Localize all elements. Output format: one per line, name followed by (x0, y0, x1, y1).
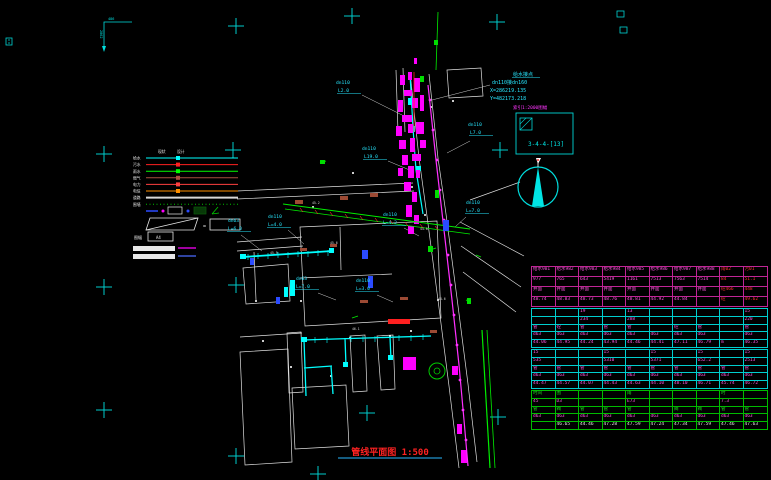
legend-header-existing: 现状 (158, 149, 166, 154)
blue-blobs (250, 220, 449, 304)
table-row: d63d63d63d63d63d63d63d63d63d63 (532, 373, 767, 381)
table-cell: 44.47 (532, 381, 556, 388)
legend-marker (176, 156, 180, 160)
equals-sign: = (203, 224, 206, 230)
table-cell: 44.95 (556, 340, 580, 347)
table-cell (626, 358, 650, 365)
table-cell: d63 (603, 373, 627, 380)
table-cell: d63 (532, 332, 556, 339)
table-cell: 5371 (650, 358, 674, 365)
table-cell: 管 (744, 366, 768, 373)
table-cell: 雨02 (720, 267, 744, 276)
table-cell (532, 317, 556, 324)
table-cell: d63 (697, 414, 721, 421)
table-cell: d63 (603, 414, 627, 421)
table-cell: 阀 (556, 407, 580, 414)
table-row: 管管管管管管管管管管 (532, 366, 767, 374)
table-cell: 管 (532, 325, 556, 332)
table-row: 45D3E737.3 (532, 399, 767, 407)
table-cell: d63 (579, 414, 603, 421)
table-cell: 44.84 (673, 297, 697, 306)
table-row: 46.6544.4647.2847.5947.2447.3447.5947.46… (532, 422, 767, 429)
table-cell (697, 391, 721, 398)
water-pipes (243, 74, 431, 396)
map-label: dn110 (468, 122, 482, 128)
table-cell: 15 (744, 350, 768, 357)
table-cell: 47.63 (744, 422, 768, 429)
table-cell: 管 (720, 366, 744, 373)
north-arrow (518, 158, 558, 207)
legend-marker (176, 189, 180, 193)
table-cell: 砼 (673, 325, 697, 332)
table-cell: 1161 (626, 277, 650, 286)
map-label: 44.6 (438, 297, 446, 301)
table-cell: d63 (579, 332, 603, 339)
table-cell: 井面 (603, 287, 627, 296)
table-cell (532, 422, 556, 429)
table-cell (626, 350, 650, 357)
pipe-data-table: 给水981给水982给水983给水984给水985给水986给水987给水988… (531, 266, 768, 431)
table-cell: 给水986 (650, 267, 674, 276)
table-cell: 48.76 (603, 297, 627, 306)
table-cell: 井面 (626, 287, 650, 296)
table-cell: 44.10 (650, 381, 674, 388)
table-cell (603, 391, 627, 398)
table-cell: d63 (720, 373, 744, 380)
table-cell: 44.24 (579, 340, 603, 347)
scale-bars (133, 246, 196, 259)
legend-marker (176, 182, 180, 186)
table-cell: 46.71 (697, 381, 721, 388)
table-cell: 46.35 (744, 340, 768, 347)
legend-marker (176, 169, 180, 173)
table-cell: 535 (532, 358, 556, 365)
table-cell: 47.34 (673, 422, 697, 429)
table-cell: 阀 (697, 407, 721, 414)
table-cell: d63 (673, 332, 697, 339)
annotation-title: 给水接点 (513, 71, 533, 78)
map-label: L=6.0 (228, 226, 242, 232)
legend-label: 污水 (133, 162, 141, 167)
table-cell: d63 (744, 414, 768, 421)
table-cell (720, 332, 744, 339)
map-label: dn63 (228, 218, 239, 224)
table-cell (579, 350, 603, 357)
table-cell (650, 309, 674, 316)
table-cell: 管 (697, 366, 721, 373)
table-cell: 7513 (650, 277, 674, 286)
table-cell (603, 317, 627, 324)
table-cell: 井面 (697, 287, 721, 296)
table-cell: 砼 (556, 325, 580, 332)
legend-symbols (146, 207, 219, 214)
table-cell: 48.73 (579, 297, 603, 306)
table-cell: d63 (673, 414, 697, 421)
table-cell (556, 358, 580, 365)
table-cell: 管 (673, 366, 697, 373)
table-cell: 15 (603, 350, 627, 357)
corner-text-h: 486 (108, 17, 114, 21)
table-cell: 管 (720, 407, 744, 414)
legend-label: 围墙 (133, 202, 141, 207)
map-label: L=4.2 (383, 220, 397, 226)
table-cell: d63 (626, 332, 650, 339)
table-cell (650, 325, 674, 332)
legend-rows: 给水污水雨水燃气电力电信道路围墙 (133, 156, 238, 207)
table-cell: 管 (626, 407, 650, 414)
table-cell: 污01 (744, 267, 768, 276)
table-cell: 管 (650, 366, 674, 373)
table-cell: 288 (626, 317, 650, 324)
table-cell (720, 325, 744, 332)
table-cell: 给水988 (697, 267, 721, 276)
table-cell (650, 399, 674, 406)
table-row: 时间围雨时 (532, 391, 767, 399)
table-cell: 管 (626, 366, 650, 373)
legend-header-design: 设计 (177, 149, 185, 154)
map-label: L7.0 (470, 130, 481, 136)
table-cell: 48.81 (626, 297, 650, 306)
table-cell: 765 (556, 277, 580, 286)
table-cell: 15 (744, 309, 768, 316)
map-label: L=7.0 (466, 208, 480, 214)
margin-marks (6, 11, 627, 45)
table-cell: 管 (579, 407, 603, 414)
table-cell: d63 (532, 414, 556, 421)
table-cell: 45.74 (720, 381, 744, 388)
table-row: 44.4744.5744.0744.4344.6344.1048.1046.71… (532, 381, 767, 388)
table-section: 给水981给水982给水983给水984给水985给水986给水987给水988… (531, 266, 768, 307)
table-row: 井面井面井面井面井面井面井面井面砼466448 (532, 287, 767, 297)
annotation-x: X=286219.135 (490, 88, 526, 94)
table-cell: d63 (556, 414, 580, 421)
table-cell: 48.83 (556, 297, 580, 306)
legend-boxes: = 图幅 A4 (134, 218, 240, 241)
table-cell: d63 (650, 373, 674, 380)
map-label: L=4.0 (268, 222, 282, 228)
table-cell: d63 (697, 332, 721, 339)
table-cell (673, 391, 697, 398)
table-cell: 44.46 (626, 340, 650, 347)
table-cell: 234 (579, 317, 603, 324)
table-cell: d63 (744, 332, 768, 339)
table-row: 977765643541911617513756375148451.1 (532, 277, 767, 287)
table-cell: 47.59 (697, 422, 721, 429)
table-cell: 977 (532, 277, 556, 286)
table-cell: 管 (603, 407, 627, 414)
table-cell: d63 (697, 373, 721, 380)
table-cell: 15 (650, 350, 674, 357)
table-cell: 管 (556, 366, 580, 373)
table-cell: 井面 (579, 287, 603, 296)
table-cell: 给水982 (556, 267, 580, 276)
table-cell: d63 (626, 373, 650, 380)
table-cell: 2513 (744, 358, 768, 365)
table-cell (697, 297, 721, 306)
table-cell: 5310 (603, 358, 627, 365)
legend-label: 燃气 (133, 175, 141, 180)
table-cell: m (720, 340, 744, 347)
map-label: dn110 (356, 278, 370, 284)
table-cell: 15 (532, 350, 556, 357)
table-cell (744, 391, 768, 398)
table-cell (579, 358, 603, 365)
table-cell: 47.46 (720, 422, 744, 429)
table-section: 191315234288220管砼管管管砼管管d63d63d63d63d63d6… (531, 308, 768, 348)
title-text: 管线平面图 1:500 (351, 446, 429, 458)
table-cell: 时 (720, 391, 744, 398)
table-cell: 15 (697, 350, 721, 357)
proposed-main-line (428, 85, 468, 466)
table-cell: 48.74 (532, 297, 556, 306)
table-cell: 围 (556, 391, 580, 398)
legend-label: 道路 (133, 195, 141, 200)
table-row: 管砼管管管砼管管 (532, 325, 767, 333)
water-fittings (240, 98, 421, 367)
table-cell: 44.06 (532, 340, 556, 347)
table-cell: 43.94 (603, 340, 627, 347)
table-cell (697, 399, 721, 406)
table-cell (650, 317, 674, 324)
table-cell: 管 (579, 325, 603, 332)
table-cell: 砼 (720, 297, 744, 306)
connection-annotation: 给水接点 dn110接dn160 X=286219.135 Y=482173.2… (490, 71, 540, 102)
table-cell (673, 350, 697, 357)
table-cell: 46.79 (697, 340, 721, 347)
table-cell (720, 350, 744, 357)
table-cell: D3 (556, 399, 580, 406)
table-cell (556, 309, 580, 316)
table-cell (720, 309, 744, 316)
table-row: 1515151515 (532, 350, 767, 358)
map-label: L=3.0 (356, 286, 370, 292)
table-cell: 47.59 (626, 422, 650, 429)
table-cell: 井面 (556, 287, 580, 296)
sheet-corner-mark: 486 2862 (99, 17, 132, 52)
map-label: dn110 (466, 200, 480, 206)
table-row: 53553105371652.22513 (532, 358, 767, 366)
table-row: 48.7448.8348.7348.7648.8144.9244.84砼49.6… (532, 297, 767, 306)
table-row: 给水981给水982给水983给水984给水985给水986给水987给水988… (532, 267, 767, 277)
table-row: 管阀管管管阀阀管管 (532, 407, 767, 415)
legend-label: 给水 (133, 156, 141, 161)
street-outlines (237, 68, 524, 468)
table-cell (720, 358, 744, 365)
table-cell: 45 (532, 399, 556, 406)
table-cell: 管 (532, 366, 556, 373)
table-cell (673, 317, 697, 324)
table-cell (697, 309, 721, 316)
legend-marker (176, 176, 180, 180)
map-labels: dn110L2.0dn110L19.0dn110L7.0dn63L=6.0dn1… (227, 80, 493, 331)
annotation-y: Y=482173.218 (490, 96, 526, 102)
table-cell: 管 (744, 407, 768, 414)
green-lines (283, 12, 495, 468)
table-cell: 7514 (697, 277, 721, 286)
map-label: dn110 (383, 212, 397, 218)
table-cell (650, 407, 674, 414)
table-cell: 46.72 (744, 381, 768, 388)
map-label: 45.6 (330, 241, 338, 245)
table-cell (603, 399, 627, 406)
cad-canvas: 486 2862 (0, 0, 771, 480)
table-cell: 44.41 (650, 340, 674, 347)
table-cell (556, 350, 580, 357)
table-cell: 给水987 (673, 267, 697, 276)
table-cell: 44.63 (626, 381, 650, 388)
table-row: d63d63d63d63d63d63d63d63d63 (532, 332, 767, 340)
table-cell: 44.43 (603, 381, 627, 388)
table-cell: 44.07 (579, 381, 603, 388)
legend-label: 电力 (133, 182, 141, 187)
sheet-number: 3-4-4-[13] (528, 141, 564, 148)
index-label: 索引1:2000图幅 (513, 104, 548, 111)
table-cell: d63 (650, 332, 674, 339)
table-cell: 管 (626, 325, 650, 332)
table-cell: d63 (556, 373, 580, 380)
legend: 现状 设计 给水污水雨水燃气电力电信道路围墙 = 图幅 A4 (133, 149, 240, 259)
table-cell (556, 317, 580, 324)
table-cell: 管 (744, 325, 768, 332)
map-label: L=7.0 (296, 284, 310, 290)
map-label: 45.9 (270, 251, 278, 255)
annotation-pipe: dn110接dn160 (492, 79, 527, 86)
table-cell: 管 (532, 407, 556, 414)
table-row: 44.0644.9544.2443.9444.4644.4147.1146.79… (532, 340, 767, 347)
table-cell: d63 (673, 373, 697, 380)
drawing-title: 管线平面图 1:500 (338, 446, 442, 458)
table-cell: 44.92 (650, 297, 674, 306)
table-cell: 51.1 (744, 277, 768, 286)
table-cell: 47.11 (673, 340, 697, 347)
table-cell: d63 (650, 414, 674, 421)
table-cell: 阀 (673, 407, 697, 414)
table-cell: 给水983 (579, 267, 603, 276)
table-cell: 管 (579, 366, 603, 373)
table-cell: 给水984 (603, 267, 627, 276)
legend-label: 电信 (133, 189, 141, 194)
table-cell: 49.62 (744, 297, 768, 306)
table-cell (579, 399, 603, 406)
map-label: dn110 (336, 80, 350, 86)
corner-text-v: 2862 (99, 30, 103, 38)
table-cell: 84 (720, 277, 744, 286)
map-label: dn110 (362, 146, 376, 152)
table-cell (532, 309, 556, 316)
table-cell: d63 (744, 373, 768, 380)
table-cell: d63 (579, 373, 603, 380)
table-row: 234288220 (532, 317, 767, 325)
table-cell (579, 391, 603, 398)
table-cell: 管 (603, 325, 627, 332)
map-label: dn110 (268, 214, 282, 220)
legend-marker (176, 163, 180, 167)
table-cell: 44.57 (556, 381, 580, 388)
table-cell: 47.28 (603, 422, 627, 429)
map-label: L2.0 (338, 88, 349, 94)
sheet-size-label: 图幅 (134, 234, 142, 240)
table-cell: 井面 (673, 287, 697, 296)
table-cell (673, 309, 697, 316)
gas-brown-marks (295, 193, 437, 333)
table-cell (673, 358, 697, 365)
table-cell: 砼466 (720, 287, 744, 296)
table-cell: d63 (603, 332, 627, 339)
table-row: 191315 (532, 309, 767, 317)
table-cell: 19 (579, 309, 603, 316)
table-cell: 13 (626, 309, 650, 316)
table-section: 时间围雨时45D3E737.3管阀管管管阀阀管管d63d63d63d63d63d… (531, 390, 768, 430)
table-cell: 46.65 (556, 422, 580, 429)
table-cell (697, 317, 721, 324)
table-cell: 220 (744, 317, 768, 324)
table-cell: 7.3 (720, 399, 744, 406)
table-cell: 管 (697, 325, 721, 332)
table-cell: 雨 (626, 391, 650, 398)
table-cell: d63 (556, 332, 580, 339)
sheet-index-box: 索引1:2000图幅 3-4-4-[13] (513, 104, 573, 154)
table-cell: E73 (626, 399, 650, 406)
table-cell (603, 309, 627, 316)
map-label: dn63 (296, 276, 307, 282)
table-cell: 时间 (532, 391, 556, 398)
table-cell: 47.24 (650, 422, 674, 429)
table-cell: 管 (603, 366, 627, 373)
table-cell: 652.2 (697, 358, 721, 365)
table-row: d63d63d63d63d63d63d63d63d63d63 (532, 414, 767, 422)
table-cell: 643 (579, 277, 603, 286)
map-label: 45.2 (312, 201, 320, 205)
table-cell (650, 391, 674, 398)
table-cell: 7563 (673, 277, 697, 286)
table-cell: 井面 (650, 287, 674, 296)
table-cell (673, 399, 697, 406)
sheet-size-value: A4 (156, 235, 161, 240)
table-cell: 给水985 (626, 267, 650, 276)
table-cell: d63 (720, 414, 744, 421)
table-cell: 给水981 (532, 267, 556, 276)
table-cell: 44.46 (579, 422, 603, 429)
table-cell: 448 (744, 287, 768, 296)
table-cell: 5419 (603, 277, 627, 286)
table-cell (744, 399, 768, 406)
map-label: 44.8 (420, 227, 428, 231)
table-cell: 井面 (532, 287, 556, 296)
table-cell: d63 (532, 373, 556, 380)
table-section: 151515151553553105371652.22513管管管管管管管管管管… (531, 349, 768, 389)
table-cell: d63 (626, 414, 650, 421)
table-cell: 48.10 (673, 381, 697, 388)
map-label: L19.0 (364, 154, 378, 160)
legend-label: 雨水 (133, 169, 141, 174)
map-label: 46.1 (352, 327, 360, 331)
table-cell (720, 317, 744, 324)
